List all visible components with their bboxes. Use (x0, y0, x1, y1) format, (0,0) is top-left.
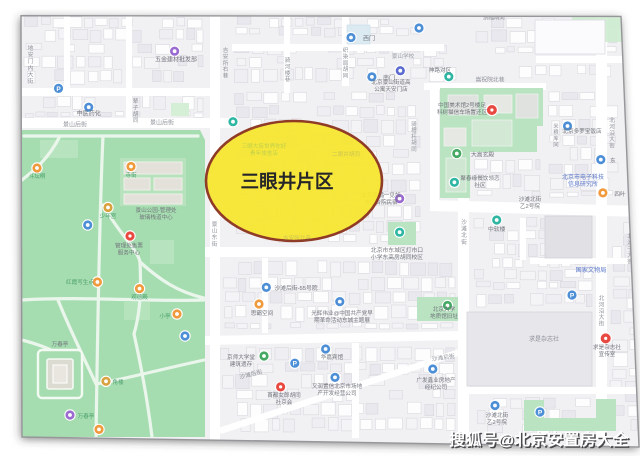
svg-text:观德殿: 观德殿 (131, 293, 148, 301)
svg-text:北河沿大街: 北河沿大街 (599, 294, 605, 328)
svg-text:沙滩北街: 沙滩北街 (461, 219, 467, 246)
svg-text:织染局胡同: 织染局胡同 (343, 46, 349, 80)
svg-text:申医药化: 申医药化 (77, 110, 101, 118)
svg-text:角楼: 角楼 (112, 378, 124, 386)
svg-text:景山后街: 景山后街 (63, 121, 87, 129)
svg-text:沙滩后街-55号院: 沙滩后街-55号院 (274, 284, 317, 292)
svg-text:辇子胡同: 辇子胡同 (133, 97, 139, 124)
svg-text:景山后街: 景山后街 (150, 119, 174, 127)
svg-text:万春亭: 万春亭 (78, 412, 95, 420)
svg-text:大高玄殿: 大高玄殿 (471, 151, 494, 159)
svg-text:中国美术馆2号楼足科树猫信车场置还区: 中国美术馆2号楼足科树猫信车场置还区 (437, 101, 488, 116)
svg-text:景山东街: 景山东街 (212, 221, 218, 248)
svg-text:三眼井片区: 三眼井片区 (241, 171, 334, 192)
svg-text:中软楼: 中软楼 (488, 225, 506, 233)
svg-text:北京景山街道高公寓天安门店: 北京景山街道高公寓天安门店 (371, 78, 411, 93)
svg-text:北河沿大街: 北河沿大街 (609, 116, 615, 150)
svg-text:万春亭: 万春亭 (52, 340, 69, 348)
svg-text:吉安所北巷: 吉安所北巷 (283, 234, 311, 242)
svg-text:红霞写生点: 红霞写生点 (66, 278, 94, 286)
svg-text:P: P (538, 409, 543, 416)
svg-text:嵩祝院北巷: 嵩祝院北巷 (476, 76, 505, 84)
svg-text:景山公园-管理处玻璃栈道中心: 景山公园-管理处玻璃栈道中心 (135, 206, 176, 221)
svg-text:米粮库同: 米粮库同 (553, 122, 559, 149)
svg-text:沙滩北街乙2号院: 沙滩北街乙2号院 (486, 411, 509, 426)
svg-text:沙滩北街乙2号院: 沙滩北街乙2号院 (519, 195, 542, 210)
svg-text:P: P (56, 86, 61, 93)
svg-text:北京市电子科技信息研究所: 北京市电子科技信息研究所 (562, 173, 604, 188)
svg-text:骑槽杆胡同: 骑槽杆胡同 (411, 120, 417, 153)
svg-text:小亭: 小亭 (159, 312, 171, 320)
svg-text:管理处售票服务中心: 管理处售票服务中心 (115, 242, 143, 257)
svg-text:东: 东 (610, 157, 616, 165)
svg-text:国家文物局: 国家文物局 (576, 266, 607, 274)
svg-text:斗坛桐: 斗坛桐 (29, 172, 46, 180)
svg-text:四叶: 四叶 (614, 190, 626, 198)
svg-text:P: P (570, 292, 575, 299)
svg-text:又润置信北京市场地产开发经营公司: 又润置信北京市场地产开发经营公司 (312, 382, 363, 397)
svg-text:五金建材批发部: 五金建材批发部 (155, 56, 197, 64)
svg-text:京师大学堂建筑遗存: 京师大学堂建筑遗存 (227, 353, 255, 368)
svg-text:P: P (293, 361, 298, 368)
svg-text:神路对区: 神路对区 (429, 66, 452, 74)
svg-text:吉安所右巷: 吉安所右巷 (223, 47, 229, 80)
svg-text:地安门内大街: 地安门内大街 (28, 44, 34, 85)
svg-text:思霸空间: 思霸空间 (251, 309, 274, 317)
svg-text:北京多罗宝饭店: 北京多罗宝饭店 (562, 127, 602, 135)
svg-text:少年宫: 少年宫 (100, 212, 117, 220)
svg-text:骑河楼巷: 骑河楼巷 (285, 56, 291, 83)
svg-text:寺街: 寺街 (125, 171, 137, 179)
svg-text:光辉伟业@中国共产党早期革命活动东城主题展: 光辉伟业@中国共产党早期革命活动东城主题展 (311, 309, 373, 324)
svg-text:二眼井胡同: 二眼井胡同 (332, 150, 360, 158)
svg-text:搜狐号@北京安置房大全: 搜狐号@北京安置房大全 (449, 430, 630, 449)
svg-text:北京市东城区灯市口小学东高房胡同校区: 北京市东城区灯市口小学东高房胡同校区 (371, 246, 423, 261)
svg-text:西门: 西门 (363, 35, 375, 43)
svg-text:华嘉宾馆: 华嘉宾馆 (321, 353, 344, 361)
svg-text:求是杂志社: 求是杂志社 (529, 335, 559, 343)
svg-text:北京大学地质馆旧址: 北京大学地质馆旧址 (430, 305, 458, 320)
svg-text:景山学校: 景山学校 (392, 52, 415, 60)
